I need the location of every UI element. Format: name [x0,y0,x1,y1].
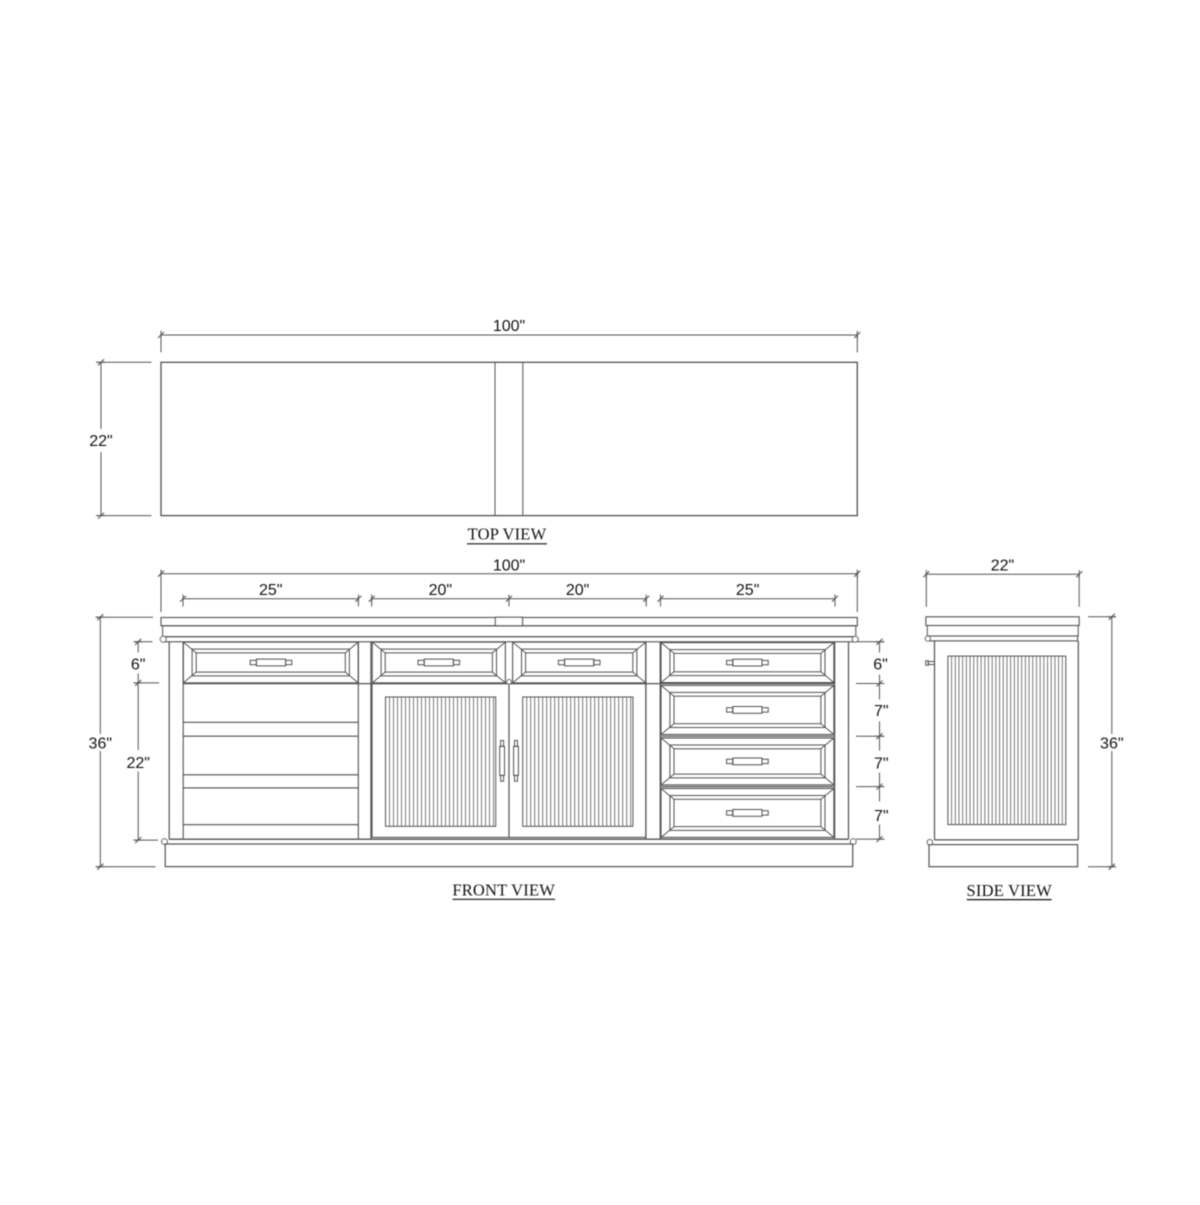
svg-text:36": 36" [89,736,112,753]
svg-text:22": 22" [991,558,1014,575]
svg-text:36": 36" [1100,736,1123,753]
svg-text:6": 6" [873,656,888,673]
svg-text:7": 7" [874,808,889,825]
svg-text:22": 22" [89,433,112,450]
svg-text:7": 7" [874,756,889,773]
svg-text:7": 7" [874,703,889,720]
svg-text:6": 6" [131,656,146,673]
svg-text:FRONT VIEW: FRONT VIEW [452,881,555,900]
svg-text:20": 20" [429,582,452,599]
svg-text:20": 20" [566,582,589,599]
svg-text:25": 25" [736,582,759,599]
svg-text:TOP VIEW: TOP VIEW [468,525,547,544]
svg-text:100": 100" [493,318,525,335]
svg-text:25": 25" [259,582,282,599]
svg-text:22": 22" [126,755,149,772]
svg-text:100": 100" [493,558,525,575]
svg-text:SIDE VIEW: SIDE VIEW [967,881,1053,900]
